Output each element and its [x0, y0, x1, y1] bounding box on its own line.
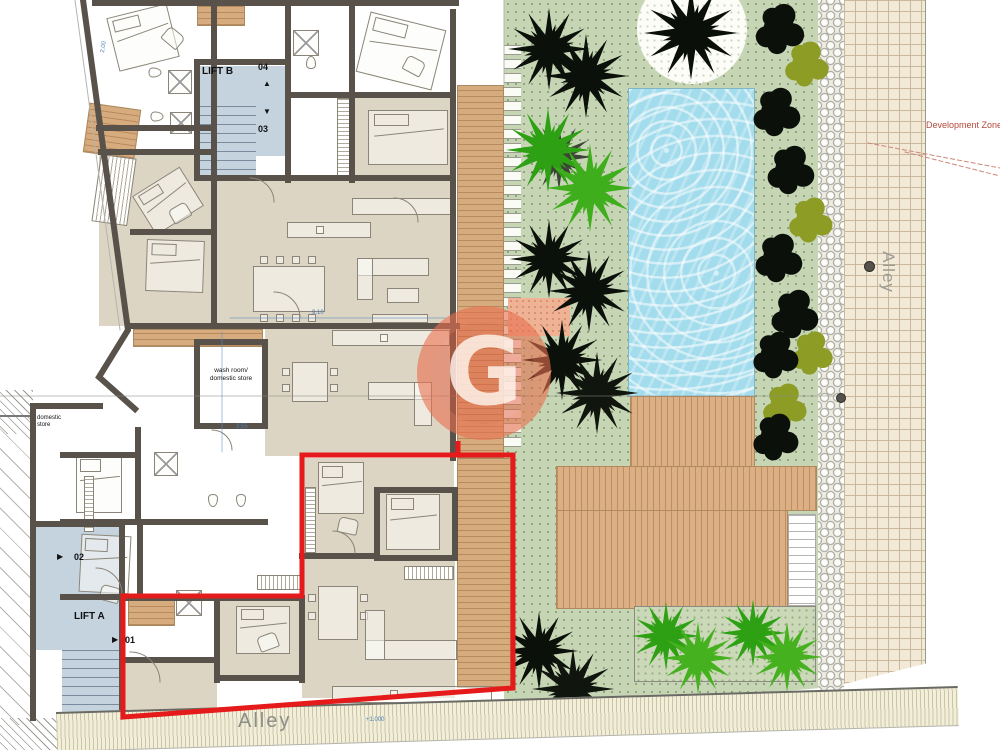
unit-04-label: 04: [258, 62, 268, 72]
survey-dot-icon: [836, 393, 846, 403]
lift-down-arrow-icon: ▼: [263, 107, 271, 116]
dimension-label: 9.10: [312, 310, 324, 316]
domestic-store-label: domesticstore: [37, 415, 61, 429]
unit-02-label: 02: [74, 552, 84, 562]
lift-b-label: LIFT B: [202, 66, 233, 77]
unit-03-label: 03: [258, 124, 268, 134]
entry-arrow-icon: ▶: [112, 635, 118, 644]
logo-letter: G: [445, 326, 522, 420]
unit-01-label: 01: [125, 635, 135, 645]
dimension-label: 3.55: [236, 424, 248, 430]
alley-vertical-label: Alley: [878, 242, 898, 302]
alley-bottom-label: Alley: [238, 710, 291, 733]
development-zone-label: Development Zone: [926, 120, 1000, 130]
lift-a-label: LIFT A: [74, 611, 105, 622]
level-marker-label: +1.000: [366, 717, 385, 723]
lift-up-arrow-icon: ▲: [263, 79, 271, 88]
survey-dot-icon: [864, 261, 875, 272]
site-plan: LIFT B LIFT A 04 03 02 01 ▲ ▼ ▶ ▶ domest…: [0, 0, 1000, 750]
wash-room-label: wash room/domestic store: [200, 367, 262, 382]
entry-arrow-icon: ▶: [57, 552, 63, 561]
logo-watermark: G: [417, 306, 551, 440]
